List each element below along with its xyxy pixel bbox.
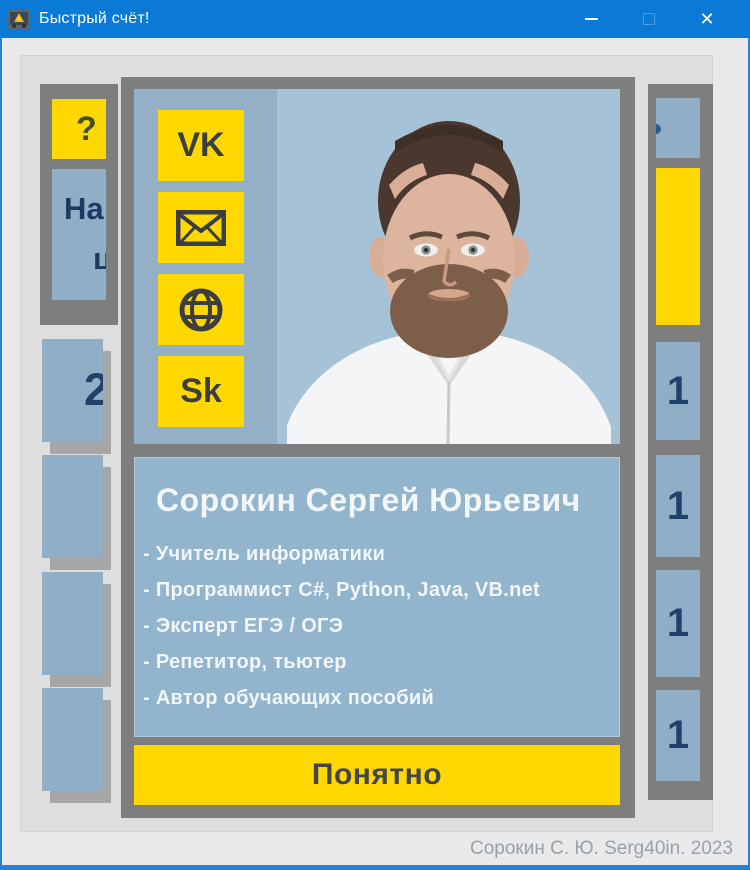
- right-number-button-3[interactable]: 1: [656, 570, 700, 677]
- profile-item-1: - Учитель информатики: [143, 543, 385, 566]
- help-button-label: ?: [76, 110, 97, 149]
- titlebar: Быстрый счёт! ✕: [0, 0, 750, 38]
- profile-item-2: - Программист C#, Python, Java, VB.net: [143, 579, 540, 602]
- email-button[interactable]: [158, 192, 244, 263]
- dialog-top-section: VK Sk: [134, 89, 620, 444]
- ok-button[interactable]: Понятно: [134, 745, 620, 805]
- profile-item-5: - Автор обучающих пособий: [143, 687, 434, 710]
- right-number-label: 1: [667, 484, 689, 529]
- website-button[interactable]: [158, 274, 244, 345]
- left-number-button-2[interactable]: [42, 455, 103, 558]
- right-number-button-1[interactable]: 1: [656, 342, 700, 440]
- profile-item-4: - Репетитор, тьютер: [143, 651, 347, 674]
- vk-button[interactable]: VK: [158, 110, 244, 181]
- clipped-glyph-dot: [656, 124, 661, 134]
- right-number-button-2[interactable]: 1: [656, 455, 700, 557]
- left-info-frame: ? На ц: [40, 84, 118, 325]
- left-number-button-1[interactable]: 2: [42, 339, 103, 442]
- right-top-cell: [656, 98, 700, 158]
- help-button[interactable]: ?: [52, 99, 106, 159]
- window-border-left: [0, 38, 2, 866]
- credit-text: Сорокин С. Ю. Serg40in. 2023: [470, 838, 733, 860]
- vk-label: VK: [177, 126, 224, 165]
- ok-button-label: Понятно: [312, 758, 442, 792]
- left-number-button-4[interactable]: [42, 688, 103, 791]
- clipped-label-line2: ц: [93, 241, 106, 277]
- right-number-label: 1: [667, 601, 689, 646]
- caption-buttons: ✕: [562, 0, 736, 38]
- close-button[interactable]: ✕: [678, 0, 736, 38]
- maximize-button: [620, 0, 678, 38]
- window-title: Быстрый счёт!: [39, 10, 150, 28]
- minimize-button[interactable]: [562, 0, 620, 38]
- right-number-label: 1: [667, 713, 689, 758]
- globe-icon: [178, 287, 224, 333]
- profile-name: Сорокин Сергей Юрьевич: [156, 482, 581, 519]
- about-dialog: VK Sk: [121, 77, 635, 818]
- maximize-icon: [643, 13, 655, 25]
- profile-item-3: - Эксперт ЕГЭ / ОГЭ: [143, 615, 343, 638]
- statusbar: Сорокин С. Ю. Serg40in. 2023: [2, 832, 748, 865]
- envelope-icon: [176, 210, 226, 246]
- skype-button[interactable]: Sk: [158, 356, 244, 427]
- window-border-bottom: [0, 865, 750, 870]
- right-yellow-cell: [656, 168, 700, 325]
- minimize-icon: [585, 18, 598, 20]
- right-number-button-4[interactable]: 1: [656, 690, 700, 781]
- right-number-label: 1: [667, 369, 689, 414]
- clipped-label-line1: На: [64, 191, 104, 227]
- skype-label: Sk: [180, 372, 222, 411]
- left-number-label: 2: [84, 364, 103, 416]
- profile-photo: [277, 89, 620, 444]
- right-answer-frame: 1 1 1 1: [648, 84, 713, 800]
- app-icon: [7, 7, 31, 31]
- clipped-label-cell: На ц: [52, 169, 106, 300]
- profile-panel: Сорокин Сергей Юрьевич - Учитель информа…: [134, 457, 620, 737]
- left-number-button-3[interactable]: [42, 572, 103, 675]
